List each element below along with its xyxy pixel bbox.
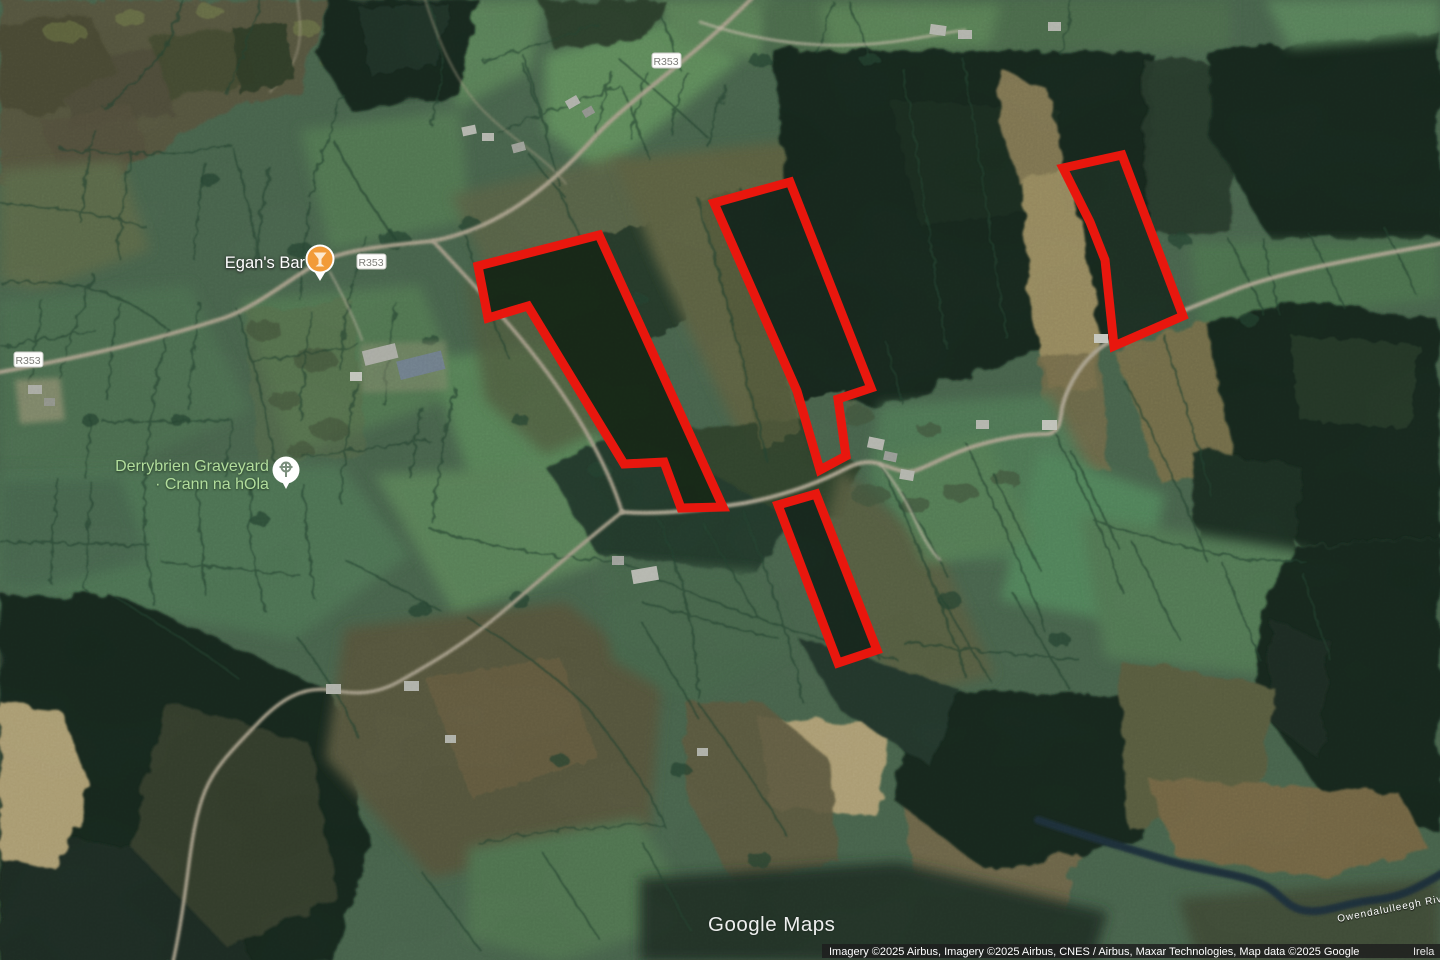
svg-text:Imagery ©2025 Airbus, Imagery: Imagery ©2025 Airbus, Imagery ©2025 Airb… bbox=[829, 946, 1359, 958]
svg-text:Irela: Irela bbox=[1413, 946, 1435, 958]
svg-text:R353: R353 bbox=[358, 257, 383, 269]
svg-text:Google Maps: Google Maps bbox=[708, 913, 835, 936]
svg-text:R353: R353 bbox=[653, 56, 678, 68]
svg-text:· Crann na hOla: · Crann na hOla bbox=[155, 476, 269, 493]
svg-text:R353: R353 bbox=[15, 355, 40, 367]
svg-text:Derrybrien Graveyard: Derrybrien Graveyard bbox=[115, 458, 269, 475]
svg-text:Egan's Bar: Egan's Bar bbox=[225, 254, 306, 272]
